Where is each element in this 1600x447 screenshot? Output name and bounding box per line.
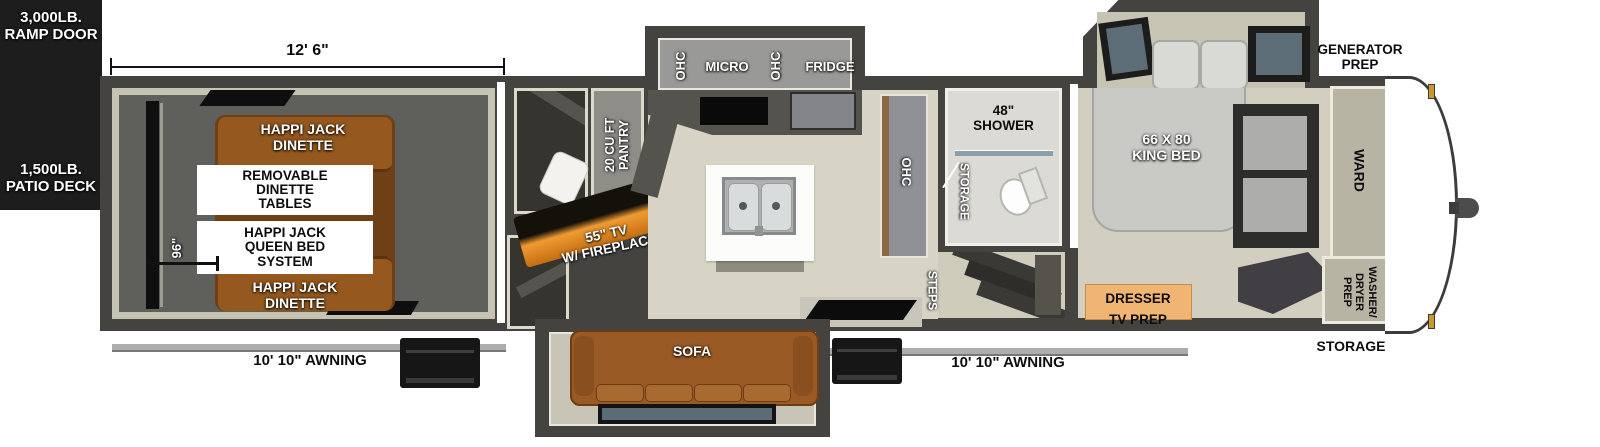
queen-bed-label: HAPPI JACK QUEEN BED SYSTEM [244, 226, 326, 269]
shower-glass [955, 150, 1053, 156]
garage-length-dimension: 12' 6" [110, 42, 505, 60]
bedroom-window-left [1098, 17, 1156, 81]
rear-exterior-box: 3,000LB. RAMP DOOR 1,500LB. PATIO DECK [0, 0, 102, 210]
wardrobe-door-top [1243, 116, 1307, 170]
sofa-cushion-4 [743, 384, 791, 402]
sofa-cushion-3 [694, 384, 742, 402]
step-line [406, 378, 474, 383]
sofa-cushion-2 [645, 384, 693, 402]
clearance-light-top [1428, 84, 1435, 99]
sofa-armrest-left [574, 336, 594, 396]
sofa-label: SOFA [622, 344, 762, 360]
garage-width-dimension: 96" [170, 228, 184, 268]
ramp-door-frame [146, 101, 159, 309]
step-line [837, 349, 897, 352]
sofa-cushion-1 [596, 384, 644, 402]
slide-window [598, 404, 776, 424]
removable-tables-label: REMOVABLE DINETTE TABLES [242, 169, 327, 212]
step-line [406, 350, 474, 353]
dinette-top-label: HAPPI JACK DINETTE [213, 122, 393, 153]
king-bed-label: 66 X 80 KING BED [1094, 132, 1239, 163]
front-storage-label: STORAGE [1291, 339, 1411, 355]
ramp-door-screen [160, 103, 163, 307]
awning-right-label: 10' 10" AWNING [898, 355, 1118, 372]
floorplan-canvas: 3,000LB. RAMP DOOR 1,500LB. PATIO DECK 1… [0, 0, 1600, 447]
window-glass [1106, 24, 1148, 75]
step-line [837, 375, 897, 380]
ohc-wood-trim [882, 96, 889, 256]
entry-steps-right [832, 338, 902, 384]
sink-drain-left [739, 202, 747, 210]
hitch-pin-stem [1449, 202, 1459, 214]
dimension-line [110, 66, 505, 68]
bed-pillow-left [1152, 40, 1200, 90]
awning-left-label: 10' 10" AWNING [200, 353, 420, 370]
step-landing [1035, 255, 1061, 315]
wardrobe-slide [1233, 104, 1319, 248]
ohc-upper-mid-label: OHC [769, 48, 783, 84]
washer-dryer-label: WASHER/ DRYER PREP [1336, 260, 1378, 324]
fridge-label: FRIDGE [790, 60, 870, 75]
generator-prep-label: GENERATOR PREP [1305, 42, 1415, 72]
dimension-tick-left [110, 58, 112, 75]
counter-appliance [790, 92, 856, 130]
bed-pillow-right [1200, 40, 1248, 90]
clearance-light-bottom [1428, 314, 1435, 329]
closet-shelf [528, 88, 588, 138]
sofa [570, 330, 819, 406]
ramp-door-label: 3,000LB. RAMP DOOR [0, 10, 102, 44]
ward-label: WARD [1352, 145, 1367, 197]
garage-width-dim-end [216, 256, 219, 271]
entry-cabinet-glass [805, 300, 917, 320]
section-gap-left [497, 82, 505, 323]
garage-width-dim-line [154, 106, 156, 264]
bedroom-window-right [1248, 26, 1310, 82]
removable-tables-box: REMOVABLE DINETTE TABLES [197, 165, 373, 215]
garage-skylight-top [199, 90, 295, 106]
double-sink [722, 177, 796, 235]
dinette-bottom-label: HAPPI JACK DINETTE [205, 280, 385, 311]
ohc-wall-label: OHC [899, 152, 913, 192]
dresser-tv-prep-label: DRESSER TV PREP [1083, 289, 1193, 331]
steps-area [938, 252, 1065, 318]
ohc-upper-left-label: OHC [674, 48, 688, 84]
section-gap-right [1070, 84, 1078, 248]
pantry-label: 20 CU FT PANTRY [603, 100, 631, 190]
window-glass [1256, 33, 1302, 75]
cooktop [700, 97, 768, 125]
queen-bed-box: HAPPI JACK QUEEN BED SYSTEM [197, 221, 373, 274]
patio-deck-label: 1,500LB. PATIO DECK [0, 162, 102, 196]
bath-storage-label: STORAGE [957, 160, 970, 224]
shower-label: 48" SHOWER [950, 103, 1057, 133]
sink-drain-right [772, 202, 780, 210]
micro-label: MICRO [692, 60, 762, 75]
dimension-tick-right [503, 58, 505, 75]
front-cap [1385, 76, 1458, 334]
sofa-armrest-right [793, 336, 813, 396]
sink-faucet [755, 226, 763, 236]
steps-label: STEPS [926, 267, 939, 315]
entry-steps-left [400, 338, 480, 388]
wardrobe-door-bottom [1243, 178, 1307, 232]
